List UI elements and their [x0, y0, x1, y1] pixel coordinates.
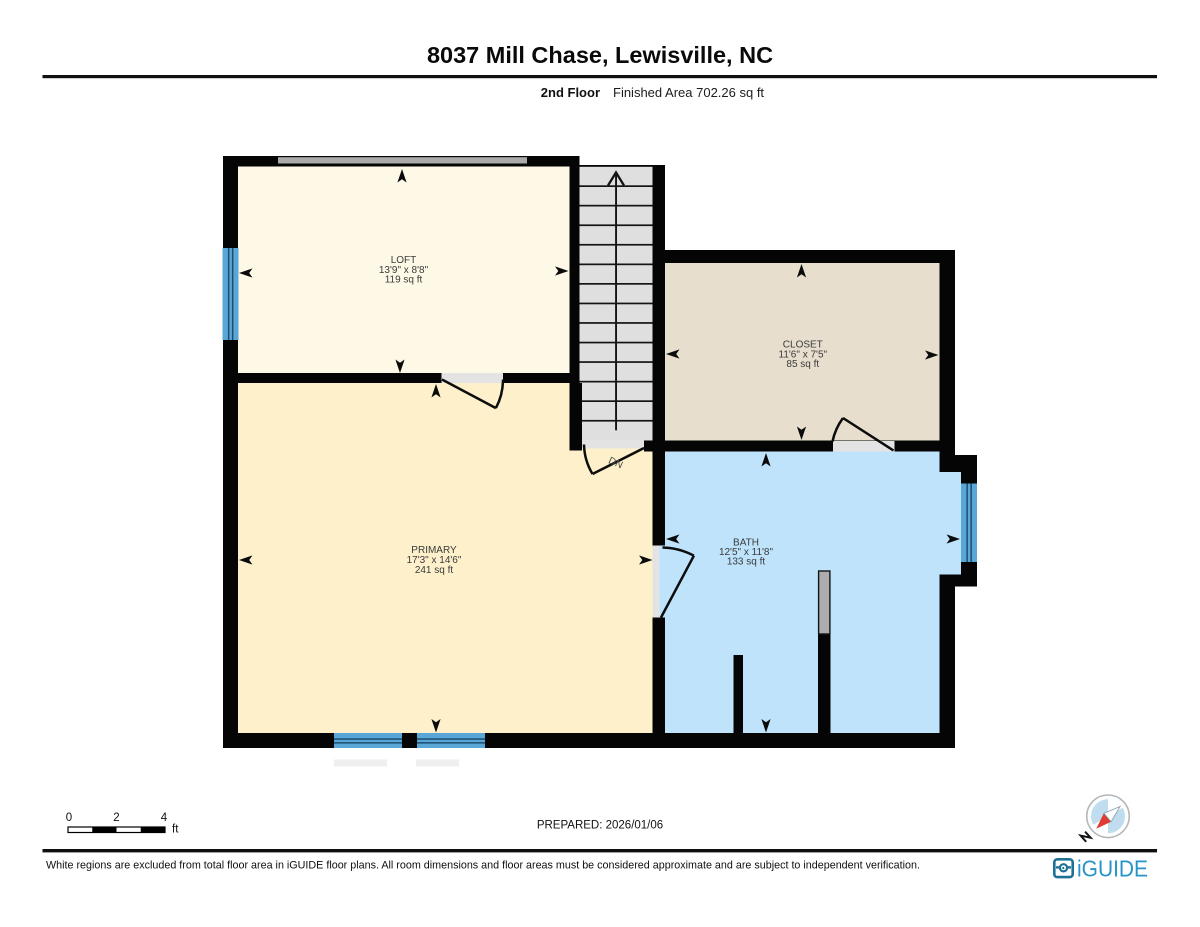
- svg-text:0: 0: [66, 812, 72, 824]
- svg-text:4: 4: [161, 812, 168, 824]
- svg-text:2: 2: [113, 812, 119, 824]
- svg-text:ft: ft: [172, 824, 179, 836]
- svg-text:8037 Mill Chase, Lewisville, N: 8037 Mill Chase, Lewisville, NC: [427, 42, 773, 68]
- svg-text:iGUIDE: iGUIDE: [1077, 856, 1148, 882]
- svg-text:2nd Floor: 2nd Floor: [541, 85, 600, 100]
- svg-text:241 sq ft: 241 sq ft: [415, 565, 454, 576]
- svg-text:Finished Area 702.26 sq ft: Finished Area 702.26 sq ft: [613, 85, 764, 100]
- svg-text:133 sq ft: 133 sq ft: [727, 556, 766, 567]
- svg-text:White regions are excluded fro: White regions are excluded from total fl…: [46, 860, 920, 872]
- svg-text:119 sq ft: 119 sq ft: [385, 275, 423, 286]
- svg-text:85 sq ft: 85 sq ft: [786, 359, 819, 370]
- svg-text:PREPARED: 2026/01/06: PREPARED: 2026/01/06: [537, 820, 663, 832]
